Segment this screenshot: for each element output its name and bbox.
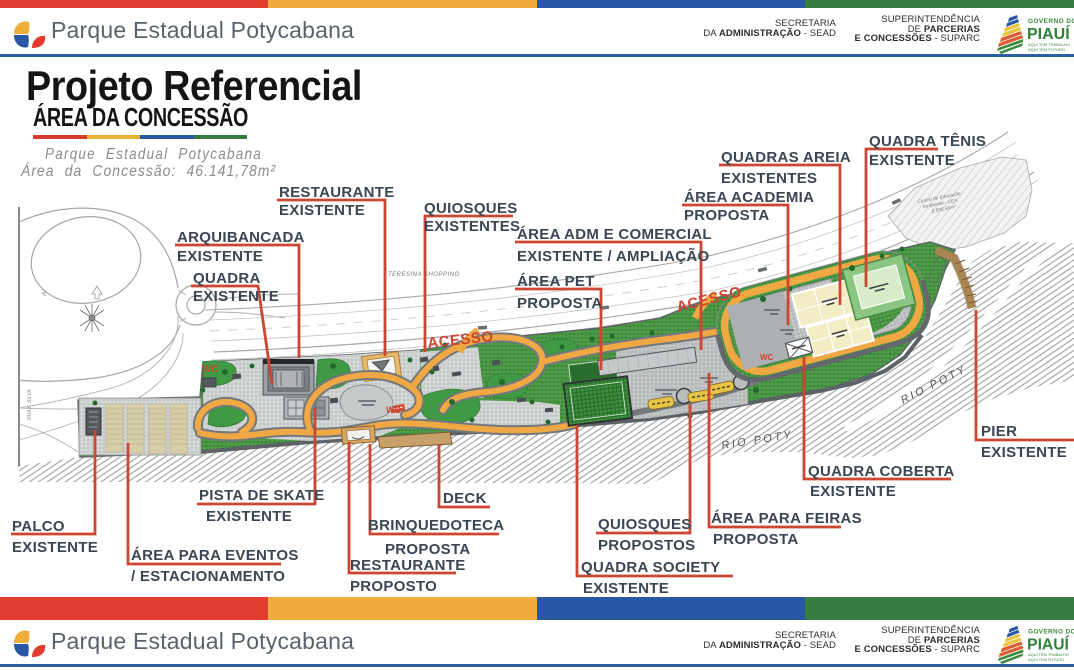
svg-text:EXISTENTE / AMPLIAÇÃO: EXISTENTE / AMPLIAÇÃO [517,247,709,265]
svg-text:EXISTENTE: EXISTENTE [583,580,669,597]
svg-text:RESTAURANTE: RESTAURANTE [350,557,466,574]
svg-text:RESTAURANTE: RESTAURANTE [279,184,395,201]
svg-text:EXISTENTE: EXISTENTE [279,202,365,219]
svg-text:PROPOSTA: PROPOSTA [517,295,602,312]
svg-text:PISTA DE SKATE: PISTA DE SKATE [199,487,325,504]
svg-text:AQUI TEM FUTURO: AQUI TEM FUTURO [1028,657,1064,662]
svg-text:PROPOSTA: PROPOSTA [713,531,798,548]
svg-text:ÁREA ADM E COMERCIAL: ÁREA ADM E COMERCIAL [517,226,712,243]
svg-text:EXISTENTE: EXISTENTE [981,444,1067,461]
svg-text:QUADRA TÊNIS: QUADRA TÊNIS [869,132,986,150]
svg-text:BRINQUEDOTECA: BRINQUEDOTECA [368,517,504,534]
svg-text:EXISTENTE: EXISTENTE [810,483,896,500]
svg-text:EXISTENTE: EXISTENTE [869,152,955,169]
svg-text:EXISTENTE: EXISTENTE [12,539,98,556]
svg-text:/ ESTACIONAMENTO: / ESTACIONAMENTO [131,568,285,585]
svg-text:PIER: PIER [981,423,1017,440]
svg-text:DECK: DECK [443,490,487,507]
svg-text:PALCO: PALCO [12,518,65,535]
svg-text:WC: WC [202,364,219,375]
svg-text:WC: WC [386,405,401,415]
svg-text:ARQUIBANCADA: ARQUIBANCADA [177,229,305,246]
svg-text:RUA F. SILVA: RUA F. SILVA [27,389,33,420]
svg-text:QUADRAS AREIA: QUADRAS AREIA [721,149,851,166]
svg-text:EXISTENTE: EXISTENTE [177,248,263,265]
svg-text:ÁREA ACADEMIA: ÁREA ACADEMIA [684,189,814,206]
svg-text:QUADRA COBERTA: QUADRA COBERTA [808,463,955,480]
svg-text:QUADRA SOCIETY: QUADRA SOCIETY [581,559,721,576]
svg-text:QUADRA: QUADRA [193,270,261,287]
svg-text:ÁREA PARA EVENTOS: ÁREA PARA EVENTOS [131,547,299,564]
svg-text:PROPOSTOS: PROPOSTOS [598,537,695,554]
svg-text:ÁREA PET: ÁREA PET [517,273,595,290]
svg-text:EXISTENTE: EXISTENTE [206,508,292,525]
svg-text:PROPOSTO: PROPOSTO [350,578,437,595]
svg-text:PROPOSTA: PROPOSTA [385,541,470,558]
svg-text:PIAUÍ: PIAUÍ [1027,634,1069,653]
svg-text:ÁREA PARA FEIRAS: ÁREA PARA FEIRAS [711,510,862,527]
svg-text:QUIOSQUES: QUIOSQUES [598,516,692,533]
svg-text:GOVERNO DO: GOVERNO DO [1028,629,1074,636]
svg-text:QUIOSQUES: QUIOSQUES [424,200,518,217]
svg-text:EXISTENTE: EXISTENTE [193,288,279,305]
svg-text:PROPOSTA: PROPOSTA [684,207,769,224]
svg-text:EXISTENTES: EXISTENTES [424,218,520,235]
svg-text:WC: WC [760,353,774,362]
svg-text:EXISTENTES: EXISTENTES [721,170,817,187]
